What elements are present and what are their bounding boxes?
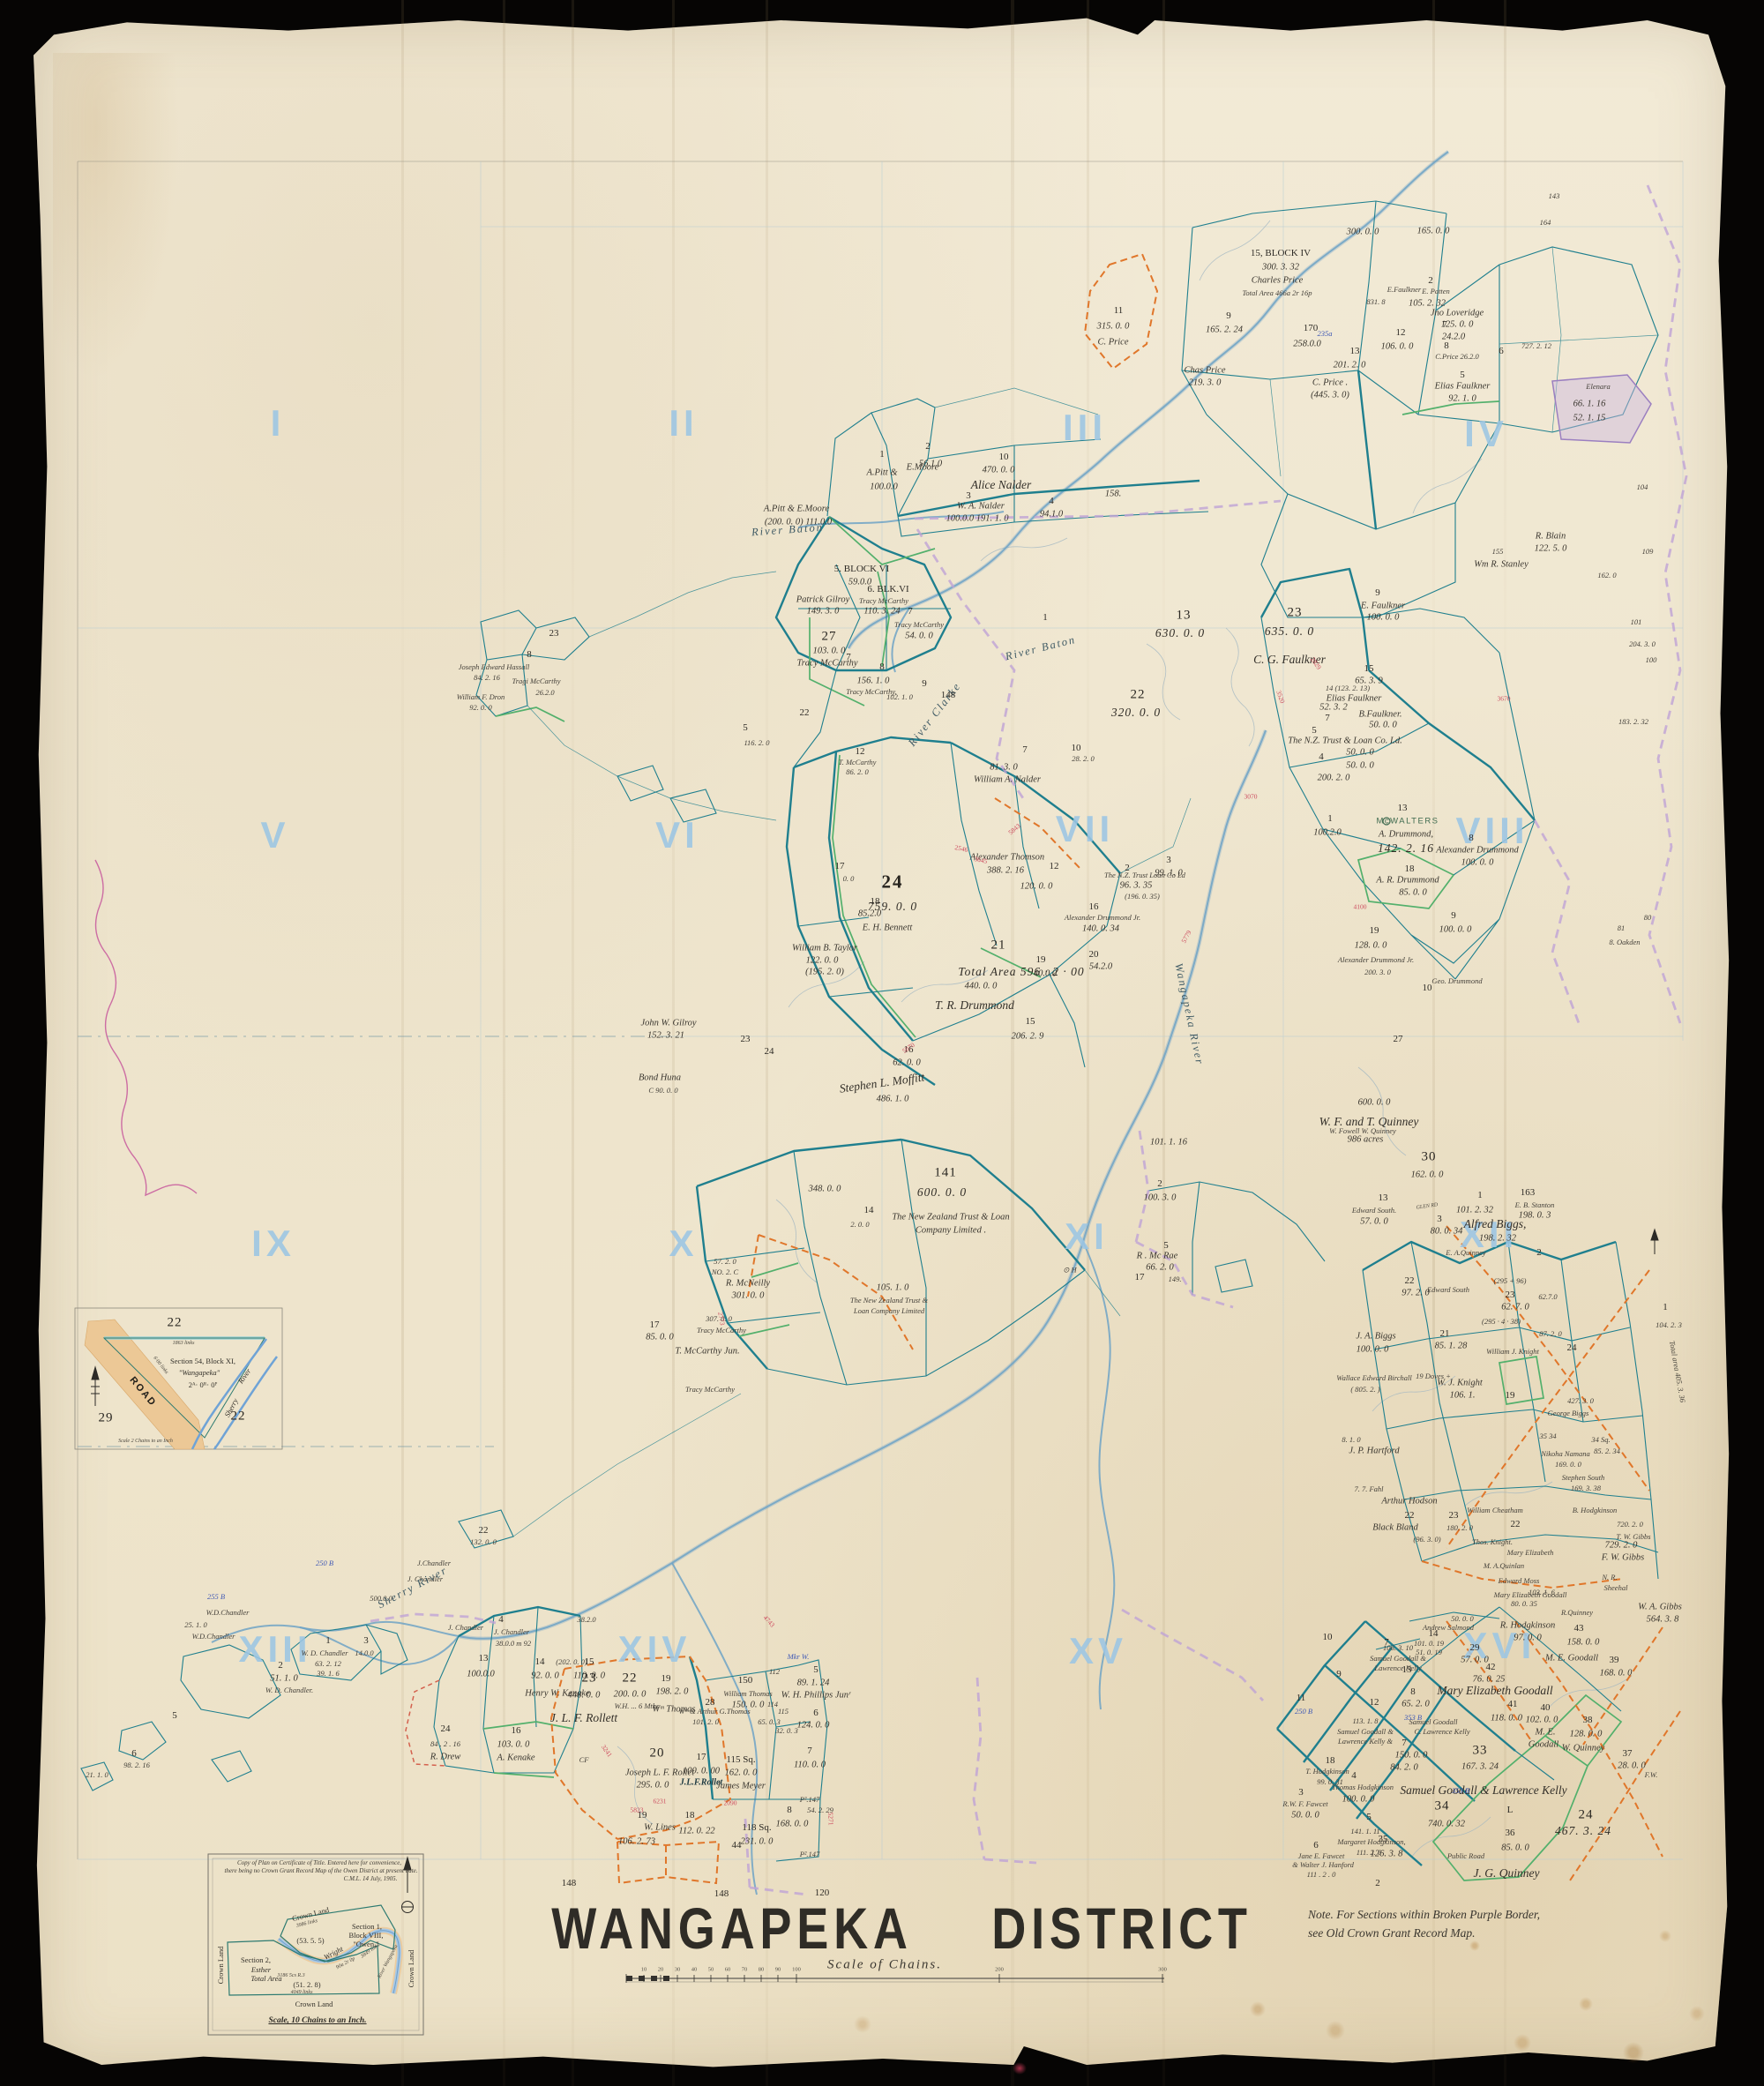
map-label: 50. 0. 0 bbox=[1291, 1811, 1319, 1821]
map-label: Wright bbox=[322, 1944, 344, 1962]
map-label: 388. 2. 16 bbox=[987, 866, 1024, 876]
map-label: 250 B bbox=[1295, 1707, 1312, 1716]
map-label: 115 bbox=[778, 1707, 789, 1716]
map-label: The N.Z. Trust & Loan Co. Ld. bbox=[1288, 736, 1402, 746]
map-label: 2090 bbox=[724, 1799, 737, 1807]
scale-caption: Scale of Chains. bbox=[827, 1958, 942, 1973]
map-label: Elias Faulkner bbox=[1435, 382, 1491, 392]
map-label: 169. 0. 0 bbox=[1555, 1460, 1581, 1469]
map-label: 22 bbox=[231, 1409, 246, 1424]
map-label: 18 bbox=[1326, 1755, 1335, 1766]
map-label: 85. 2. 34 bbox=[1594, 1447, 1620, 1455]
map-label: Company Limited . bbox=[916, 1226, 986, 1236]
block-numeral: VI bbox=[655, 814, 699, 856]
map-label: 9 bbox=[1226, 310, 1231, 321]
map-label: 8 bbox=[879, 662, 885, 672]
map-label: Sherry River bbox=[376, 1564, 450, 1611]
map-label: E. B. Stanton bbox=[1515, 1200, 1555, 1209]
map-label: Geo. Drummond bbox=[1431, 976, 1482, 985]
map-label: 300. 3. 32 bbox=[1262, 263, 1299, 273]
map-label: 1863 links bbox=[173, 1341, 195, 1346]
map-label: Alexander Drummond Jr. bbox=[1338, 955, 1414, 964]
map-label: J.Chandler bbox=[417, 1559, 451, 1567]
map-label: 37 bbox=[1623, 1748, 1633, 1759]
map-label: W. Fowell W. Quinney bbox=[1329, 1126, 1396, 1135]
map-label: T. Hodgkinson bbox=[1305, 1767, 1349, 1776]
map-label: 30 bbox=[1422, 1150, 1437, 1165]
map-label: 4 bbox=[1319, 751, 1324, 762]
note-line-1: Note. For Sections within Broken Purple … bbox=[1308, 1905, 1540, 1924]
map-label: GLEN RD bbox=[1416, 1202, 1438, 1210]
map-label: 41 bbox=[1508, 1699, 1518, 1709]
map-label: J. L. F. Rollett bbox=[550, 1711, 617, 1725]
block-numeral: XI bbox=[1065, 1215, 1109, 1258]
map-label: 235a bbox=[1318, 329, 1333, 338]
map-label: 15 bbox=[1026, 1016, 1035, 1027]
map-photograph: IIIIIIIVVVIVIIVIIIIXXXIXIIXIIIXIVXVXVI1A… bbox=[0, 0, 1764, 2086]
map-label: Scale, 10 Chains to an Inch. bbox=[268, 2016, 366, 2025]
map-label: 23 bbox=[741, 1034, 751, 1044]
map-label: C 90. 0. 0 bbox=[648, 1086, 677, 1095]
map-label: 60 bbox=[725, 1967, 731, 1973]
map-label: 84. 2. 0 bbox=[1390, 1763, 1418, 1773]
map-label: Jane E. Fawcet bbox=[1298, 1851, 1345, 1860]
map-label: 150 bbox=[738, 1675, 753, 1686]
map-label: Black Bland bbox=[1372, 1523, 1418, 1533]
map-label: W. D. Chandler. bbox=[265, 1686, 313, 1694]
map-label: R. McNeilly bbox=[726, 1279, 770, 1289]
map-label: 3670 bbox=[1498, 695, 1511, 703]
map-label: 24 bbox=[441, 1723, 451, 1734]
map-label: Section 54, Block XI, bbox=[170, 1357, 235, 1365]
map-label: 5 bbox=[172, 1710, 177, 1721]
map-label: 8 bbox=[1469, 833, 1474, 843]
map-label: 40 bbox=[1541, 1702, 1551, 1713]
map-label: 8. Oakden bbox=[1610, 938, 1641, 946]
map-label: 22 bbox=[1511, 1519, 1521, 1529]
map-label: 102. 1. 0 bbox=[886, 692, 913, 701]
map-label: 23 bbox=[1506, 1290, 1515, 1300]
map-label: William A. Nalder bbox=[974, 775, 1041, 785]
map-label: 148 bbox=[714, 1888, 729, 1899]
map-label: Crown Land bbox=[407, 1950, 415, 1988]
map-label: Mkr W. bbox=[788, 1652, 810, 1661]
map-label: C. Price bbox=[1098, 338, 1129, 348]
map-label: 7 bbox=[1401, 1738, 1407, 1748]
block-numeral: XV bbox=[1069, 1630, 1127, 1672]
map-label: Margaret Hodgkinson, bbox=[1337, 1837, 1405, 1846]
map-label: C. Price . bbox=[1312, 378, 1348, 388]
map-label: 57. 0. 0 bbox=[1461, 1656, 1489, 1665]
map-label: 13 bbox=[1350, 346, 1360, 356]
map-label: 85. 0. 0 bbox=[1399, 888, 1427, 898]
map-label: 52. 3. 2 bbox=[1319, 703, 1348, 713]
map-label: 163 bbox=[1521, 1187, 1536, 1198]
map-label: "Wangapeka" bbox=[179, 1368, 220, 1377]
note-line-2: see Old Crown Grant Record Map. bbox=[1308, 1924, 1540, 1942]
map-label: T. R. Drummond bbox=[935, 998, 1014, 1013]
map-label: 14 (123. 2. 13) bbox=[1326, 684, 1370, 692]
map-label: 62. 0. 0 bbox=[893, 1058, 921, 1068]
map-label: 125. 0. 0 bbox=[1441, 320, 1474, 330]
map-label: John W. Gilroy bbox=[640, 1019, 696, 1028]
map-label: 51. 0. 19 bbox=[1416, 1648, 1442, 1656]
map-label: 169. 3. 38 bbox=[1571, 1484, 1601, 1492]
map-label: Samuel Goodall & Lawrence Kelly bbox=[1400, 1783, 1566, 1798]
map-label: 3 bbox=[1298, 1787, 1304, 1798]
map-label: 65. 2. 0 bbox=[1401, 1700, 1430, 1709]
map-label: 54.2.0 bbox=[1089, 962, 1112, 972]
map-label: Wallace Edward Birchall bbox=[1336, 1373, 1411, 1382]
map-label: Edward South bbox=[1427, 1285, 1469, 1294]
map-label: 2 bbox=[1375, 1878, 1380, 1888]
map-label: 19 bbox=[1036, 954, 1046, 965]
map-label: 7 bbox=[807, 1746, 812, 1756]
map-label: M. A.Quinlan bbox=[1484, 1561, 1524, 1570]
map-label: 57. 0. 0 bbox=[1360, 1217, 1388, 1227]
map-label: 353 B bbox=[1404, 1713, 1422, 1722]
map-label: 164 bbox=[1540, 218, 1551, 227]
map-label: 122. 0. 0 bbox=[806, 956, 839, 966]
map-label: A. Drummond, bbox=[1379, 830, 1433, 840]
map-label: 19 bbox=[661, 1673, 671, 1684]
map-label: William Thomas bbox=[723, 1689, 773, 1698]
map-label: 120 bbox=[815, 1888, 830, 1898]
map-label: 101. 0. 19 bbox=[1414, 1639, 1444, 1648]
map-label: W. Quinney bbox=[1562, 1744, 1605, 1753]
map-label: 7 bbox=[1022, 744, 1028, 755]
map-label: 21 bbox=[991, 938, 1006, 953]
map-label: 106. 1. bbox=[1450, 1391, 1476, 1401]
map-label: 167. 3. 24 bbox=[1461, 1762, 1499, 1772]
map-label: 56.1.0 bbox=[919, 460, 942, 469]
map-label: 99. 1. 0 bbox=[1155, 869, 1183, 879]
map-label: 9 bbox=[1451, 910, 1456, 921]
map-label: Tracy McCarthy bbox=[894, 620, 944, 629]
map-label: 4 bbox=[498, 1614, 504, 1625]
map-label: River Wangapeka bbox=[377, 1944, 399, 1979]
map-label: 94.1.0 bbox=[1040, 510, 1063, 520]
map-label: 28. 0. 0 bbox=[1618, 1761, 1646, 1771]
map-label: R. Blain bbox=[1536, 532, 1566, 542]
map-labels-layer: IIIIIIIVVVIVIIVIIIIXXXIXIIXIIIXIVXVXVI1A… bbox=[0, 0, 1764, 2086]
map-label: 4 bbox=[1049, 496, 1054, 506]
map-label: A.Pitt & bbox=[867, 468, 898, 478]
map-label: 2 bbox=[1536, 1247, 1542, 1258]
map-label: 81 bbox=[1618, 923, 1626, 932]
map-label: 128. 0. 0 bbox=[1570, 1730, 1603, 1739]
map-label: 80. 0. 34 bbox=[1431, 1227, 1463, 1237]
map-label: 17 bbox=[835, 861, 845, 871]
map-label: 38.0.0 m 92 bbox=[496, 1639, 531, 1648]
map-label: E. Patten bbox=[1422, 287, 1450, 295]
map-label: 13 bbox=[1379, 1193, 1388, 1203]
block-numeral: II bbox=[669, 402, 698, 445]
map-label: William J. Knight bbox=[1486, 1347, 1539, 1356]
map-label: 168. 0. 0 bbox=[776, 1820, 809, 1829]
map-label: 104. 2. 3 bbox=[1656, 1320, 1682, 1329]
map-label: Samuel Goodall & bbox=[1337, 1727, 1394, 1736]
map-label: 12 bbox=[1050, 861, 1059, 871]
map-label: 50. 0. 0 bbox=[1451, 1614, 1474, 1623]
block-numeral: VII bbox=[1056, 808, 1114, 850]
map-label: 101. 2. 32 bbox=[1456, 1206, 1493, 1215]
map-label: 8 bbox=[1410, 1686, 1416, 1697]
map-label: 140. 0. 34 bbox=[1082, 924, 1119, 934]
map-label: R. Drew bbox=[430, 1753, 461, 1762]
map-label: 206. 2. 9 bbox=[1012, 1032, 1044, 1042]
block-numeral: V bbox=[260, 814, 289, 856]
map-label: 28. 2. 0 bbox=[1072, 754, 1095, 763]
map-label: 9 bbox=[1336, 1669, 1342, 1679]
map-label: 92. 0. 0 bbox=[469, 703, 492, 712]
map-label: J. Chandler bbox=[448, 1623, 483, 1632]
map-label: 8 bbox=[527, 649, 532, 660]
map-label: W. A. Nalder bbox=[957, 502, 1005, 512]
map-label: E. H. Bennett bbox=[863, 923, 913, 933]
map-label: 158. bbox=[1105, 490, 1121, 499]
map-label: 100. 0. 0 bbox=[1357, 1345, 1389, 1355]
map-label: 17 bbox=[650, 1320, 660, 1330]
map-label: 20 bbox=[650, 1746, 665, 1761]
map-label: 66. 2. 0 bbox=[1146, 1263, 1174, 1273]
map-label: R.Quinney bbox=[1561, 1608, 1593, 1617]
map-label: 600. 0. 0 bbox=[917, 1185, 967, 1200]
map-label: 44 bbox=[732, 1840, 742, 1850]
map-label: 81. 3. 0 bbox=[990, 763, 1018, 773]
map-label: 10 bbox=[999, 452, 1009, 462]
map-label: 5271 bbox=[826, 1812, 835, 1825]
map-label: 6 bbox=[813, 1708, 818, 1718]
map-label: 112 bbox=[769, 1667, 780, 1676]
map-label: 19 bbox=[1506, 1390, 1515, 1401]
map-label: W. H. Phillips Junʳ bbox=[781, 1691, 851, 1701]
map-label: M. E. bbox=[1535, 1728, 1555, 1738]
map-label: 15 bbox=[1364, 663, 1374, 674]
map-label: 62.7.0 bbox=[1538, 1292, 1557, 1301]
map-label: 141 bbox=[934, 1166, 957, 1181]
map-label: 32. 0. 3 bbox=[775, 1726, 798, 1735]
map-label: 100.0.0 bbox=[870, 482, 898, 492]
map-label: 2 bbox=[278, 1660, 283, 1671]
map-label: Public Road bbox=[1447, 1851, 1484, 1860]
map-label: 8 bbox=[1444, 340, 1449, 351]
block-numeral: XIV bbox=[618, 1628, 691, 1671]
map-label: 76. 0. 25 bbox=[1473, 1675, 1506, 1685]
map-label: 1 bbox=[325, 1635, 331, 1646]
map-label: Wm R. Stanley bbox=[1474, 560, 1529, 570]
map-label: 3 bbox=[363, 1635, 369, 1646]
map-label: 162. 0 bbox=[1597, 571, 1616, 579]
map-label: T. McCarthy bbox=[839, 758, 877, 766]
map-label: Lawrence Kelly & bbox=[1338, 1737, 1393, 1746]
map-label: 33 bbox=[1473, 1744, 1488, 1759]
map-label: 149. 3. 0 bbox=[807, 607, 840, 617]
map-label: 50. 0. 0 bbox=[1346, 748, 1374, 758]
map-label: Mary Elizabeth Goodall bbox=[1437, 1684, 1552, 1698]
map-label: 6231 bbox=[654, 1798, 667, 1806]
map-label: ⊙ H bbox=[1063, 1266, 1076, 1275]
map-label: 7 bbox=[1325, 713, 1330, 723]
map-label: W. Lines bbox=[644, 1823, 676, 1833]
map-label: 20 bbox=[1089, 949, 1099, 960]
map-label: 183. 2. 32 bbox=[1618, 717, 1648, 726]
map-label: (202. 0. 0) bbox=[556, 1657, 587, 1666]
map-label: W. J. Knight bbox=[1437, 1379, 1483, 1388]
map-label: 112. 0. 22 bbox=[678, 1827, 714, 1836]
map-label: 180. 2. 0 bbox=[1446, 1523, 1473, 1532]
map-label: 10 bbox=[641, 1967, 647, 1973]
map-label: A. Kenake bbox=[497, 1753, 534, 1763]
map-label: 219. 3. 0 bbox=[1189, 378, 1222, 388]
map-label: 8. 1. 0 bbox=[1342, 1435, 1360, 1444]
map-label: 13 bbox=[1177, 609, 1192, 624]
map-label: 118. 0. 0 bbox=[1491, 1714, 1522, 1723]
map-label: 13 bbox=[479, 1653, 489, 1664]
map-label: 7 bbox=[846, 652, 851, 662]
map-label: 22 bbox=[800, 707, 810, 718]
map-label: 23 bbox=[549, 628, 559, 639]
map-label: William Cheatham bbox=[1467, 1506, 1523, 1514]
map-label: 11 bbox=[1297, 1693, 1306, 1703]
map-label: 198. 2. 32 bbox=[1479, 1234, 1516, 1244]
map-label: 7. 7. Fahl bbox=[1354, 1484, 1383, 1493]
map-label: River Baton bbox=[1004, 633, 1077, 663]
map-label: Mary Elizabeth Goodall bbox=[1494, 1590, 1567, 1599]
map-label: 24 bbox=[765, 1046, 774, 1057]
map-label: 29 bbox=[1470, 1642, 1480, 1653]
map-label: W.D.Chandler bbox=[192, 1632, 235, 1641]
map-label: Alexander Drummond bbox=[1436, 846, 1519, 856]
map-label: 30 bbox=[675, 1967, 681, 1973]
map-label: 320. 0. 0 bbox=[1111, 706, 1161, 720]
map-label: 84. 2. 16 bbox=[474, 673, 500, 682]
map-label: 5 bbox=[743, 722, 748, 733]
map-label: Mary Elizabeth bbox=[1507, 1548, 1554, 1557]
map-label: 6. BLK.VI bbox=[867, 584, 908, 594]
map-label: 162. 0. 0 bbox=[1411, 1170, 1444, 1180]
map-label: 150. 0. 0 bbox=[1395, 1751, 1428, 1761]
map-label: 100. 3. 0 bbox=[1144, 1193, 1177, 1203]
map-label: Elenara bbox=[1586, 382, 1610, 391]
map-label: 100. 0. 0 bbox=[1461, 858, 1494, 868]
map-label: 106. 2. 73 bbox=[618, 1837, 655, 1847]
map-label: 14 bbox=[864, 1205, 874, 1215]
map-label: 101 bbox=[1631, 617, 1642, 626]
map-label: R.W. F. Fawcet bbox=[1282, 1799, 1327, 1808]
map-label: The New Zealand Trust & bbox=[850, 1296, 928, 1305]
map-label: 2ᴬ· 0ᴿ· 0ᴾ bbox=[189, 1380, 218, 1389]
map-label: 105. 2. 32 bbox=[1409, 299, 1446, 309]
map-label: 315. 0. 0 bbox=[1097, 322, 1130, 332]
map-label: 5779 bbox=[1180, 929, 1193, 944]
map-label: 100. 0. 0 bbox=[1439, 925, 1472, 935]
map-label: 38.2.0 bbox=[577, 1615, 595, 1624]
map-label: 96. 3. 35 bbox=[1120, 881, 1153, 891]
map-label: 99. 0. 31 bbox=[1317, 1777, 1343, 1786]
map-label: 5 bbox=[1460, 370, 1465, 380]
map-label: 5823 bbox=[631, 1806, 644, 1814]
map-label: F. W. Gibbs bbox=[1602, 1553, 1644, 1563]
map-label: 100 bbox=[792, 1967, 801, 1973]
map-label: 630. 0. 0 bbox=[1155, 626, 1205, 640]
map-label: 14.0.0 bbox=[355, 1649, 373, 1657]
map-label: 201. 2. 0 bbox=[1334, 361, 1366, 370]
map-label: 200. 3. 0 bbox=[1364, 968, 1391, 976]
map-label: 258.0.0 bbox=[1293, 340, 1321, 349]
map-label: 301. 0. 0 bbox=[732, 1291, 765, 1301]
map-label: 100 bbox=[1646, 655, 1657, 664]
map-label: 124. 0. 0 bbox=[797, 1721, 830, 1731]
map-label: 19 bbox=[1370, 925, 1379, 936]
map-label: 3520 bbox=[1274, 689, 1287, 704]
map-label: 100.0.0 191. 1. 0 bbox=[946, 514, 1009, 524]
map-label: 986 acres bbox=[1348, 1135, 1384, 1145]
map-label: 122. 5. 0 bbox=[1535, 544, 1567, 554]
map-label: 22 bbox=[623, 1671, 638, 1686]
map-label: Tracy McCarthy bbox=[685, 1385, 735, 1394]
map-label: 148 bbox=[941, 690, 956, 700]
map-label: 12 bbox=[1396, 327, 1406, 338]
map-label: 100. 0. 0 bbox=[1367, 613, 1400, 623]
map-label: 15, BLOCK IV bbox=[1251, 248, 1311, 258]
map-label: R . Mc Rae bbox=[1137, 1252, 1178, 1261]
map-label: N. R. bbox=[1602, 1573, 1617, 1581]
map-label: 5 bbox=[1312, 725, 1317, 736]
map-label: 5 bbox=[1163, 1240, 1169, 1251]
map-label: 142. 2. 16 bbox=[1378, 841, 1434, 856]
map-label: E. A.Quinney bbox=[1446, 1248, 1485, 1257]
map-label: 97. 0. 0 bbox=[1514, 1634, 1542, 1643]
map-label: 729. 2. 0 bbox=[1605, 1541, 1638, 1551]
map-label: W. A. Gibbs bbox=[1638, 1603, 1682, 1612]
map-label: C.M.L. 14 July, 1905. bbox=[344, 1875, 398, 1882]
map-label: 427. 3. 0 bbox=[1567, 1396, 1594, 1405]
map-label: T. W. Gibbs bbox=[1616, 1532, 1650, 1541]
map-label: 10 bbox=[1323, 1632, 1333, 1642]
map-label: 132. 0. 0 bbox=[470, 1537, 497, 1546]
map-label: (295 + 96) bbox=[1494, 1276, 1527, 1285]
block-numeral: X bbox=[669, 1222, 698, 1265]
map-label: 54. 0. 0 bbox=[905, 632, 933, 641]
map-label: 29 bbox=[99, 1411, 114, 1426]
map-label: 231. 0. 0 bbox=[741, 1837, 774, 1847]
map-label: River bbox=[236, 1367, 253, 1386]
map-label: 200. 2. 0 bbox=[1318, 774, 1350, 783]
map-label: B. Hodgkinson bbox=[1573, 1506, 1618, 1514]
map-label: 162. 0. 0 bbox=[725, 1768, 758, 1778]
map-label: Goodall bbox=[1529, 1740, 1558, 1750]
map-label: Alfred Biggs, bbox=[1464, 1217, 1527, 1231]
map-label: A. R. Drummond bbox=[1376, 876, 1439, 886]
map-label: 1 bbox=[1663, 1302, 1668, 1312]
map-label: 27 bbox=[822, 630, 837, 645]
map-label: T. McCarthy Jun. bbox=[675, 1347, 739, 1357]
map-label: 727. 2. 12 bbox=[1521, 341, 1551, 350]
map-label: 89. 1. 24 bbox=[797, 1679, 830, 1688]
map-label: 57. 2. 0 bbox=[714, 1257, 736, 1266]
map-label: 50. 0. 0 bbox=[1369, 721, 1397, 730]
map-label: P².147 bbox=[800, 1850, 820, 1858]
map-label: 22 bbox=[1405, 1275, 1415, 1286]
map-label: Jno Loveridge bbox=[1431, 309, 1484, 318]
map-label: 0. 0 bbox=[843, 874, 855, 883]
map-label: 66. 1. 16 bbox=[1573, 400, 1606, 409]
map-label: 1 bbox=[1327, 813, 1333, 824]
map-label: 16 bbox=[1089, 901, 1099, 912]
map-label: 39 bbox=[1610, 1655, 1619, 1665]
map-label: James Meyer bbox=[716, 1782, 766, 1791]
